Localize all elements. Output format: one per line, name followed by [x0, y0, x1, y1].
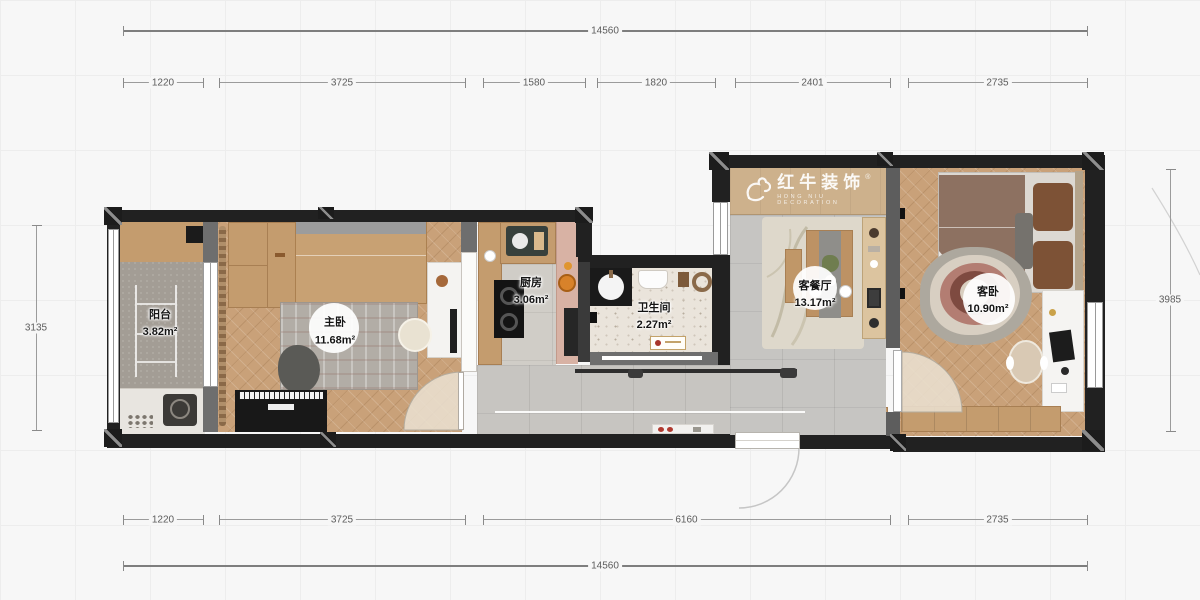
logo-subtext: HONG NIU DECORATION [777, 194, 882, 206]
tall-cabinet [461, 252, 477, 372]
laptop [1049, 330, 1075, 363]
room-name: 厨房 [514, 274, 549, 290]
wardrobe-handle [275, 253, 285, 257]
paper [1051, 383, 1067, 393]
master-wardrobe [228, 222, 300, 308]
washing-machine-door [170, 399, 190, 419]
kettle [869, 318, 879, 328]
master-bed [295, 220, 427, 304]
desk-monitor [450, 309, 457, 353]
chair-armrest [1040, 356, 1048, 370]
dimension: 6160 [672, 514, 700, 525]
wardrobe-seam [229, 265, 267, 266]
bed2-headboard [1075, 171, 1083, 295]
dimension: 3135 [22, 322, 50, 333]
corner-pillar [877, 152, 893, 166]
door-glass-line [210, 263, 211, 386]
bed2-pillow [1033, 241, 1073, 289]
dimension: 14560 [588, 560, 622, 571]
plate [839, 285, 852, 298]
dimension [1166, 169, 1176, 170]
room-label-master: 主卧 11.68m² [315, 314, 355, 347]
bath-sliding-door [602, 356, 702, 360]
room-label-bedroom2: 客卧 10.90m² [968, 283, 1009, 315]
piano [235, 390, 327, 432]
wok-pan [558, 274, 576, 292]
shoe-mat [652, 424, 714, 434]
bath-vanity [590, 268, 632, 306]
living-side-cabinet [862, 217, 886, 339]
dimension [219, 515, 220, 525]
wall-top-right-block [712, 155, 1105, 168]
room-name: 客餐厅 [795, 277, 836, 293]
master-bed-pillows [296, 221, 426, 234]
dimension [203, 515, 204, 525]
dimension [203, 78, 204, 88]
dimension: 1220 [149, 77, 177, 88]
dimension [715, 78, 716, 88]
logo-text-block: 红牛装饰® HONG NIU DECORATION [777, 174, 882, 206]
drying-rack-bar [137, 303, 175, 305]
master-desk [427, 262, 462, 358]
bedroom2-chair [1008, 340, 1044, 384]
wall-top-left-block [107, 210, 593, 222]
bedroom2-wardrobe [901, 406, 1061, 432]
wall-divider-pillar [886, 412, 900, 436]
pebble-decor [127, 414, 153, 428]
dimension [32, 225, 42, 226]
sink-bowl [512, 233, 528, 249]
dimension [483, 78, 484, 88]
pan-decor [564, 262, 572, 270]
dimension: 1220 [149, 514, 177, 525]
logo-registered-mark: ® [865, 174, 870, 181]
desk-item [1049, 309, 1056, 316]
wardrobe-seam [267, 223, 268, 307]
corner-pillar [320, 432, 336, 447]
dimension: 3725 [328, 514, 356, 525]
wall-divider [886, 168, 900, 348]
kitchen-kettle [484, 250, 496, 262]
dimension: 1580 [520, 77, 548, 88]
room-area: 3.06m² [514, 294, 549, 306]
photo-frame [867, 288, 881, 308]
entry-door-leaf [736, 440, 799, 441]
bath-faucet [609, 270, 613, 278]
balcony-window [108, 229, 119, 423]
dimension [32, 430, 42, 431]
piano-keys [239, 392, 323, 399]
clothes-rod-bar [575, 369, 797, 371]
room-area: 10.90m² [968, 303, 1009, 315]
room-area: 2.27m² [637, 319, 672, 331]
brand-logo: 红牛装饰® HONG NIU DECORATION [742, 174, 882, 206]
room-name: 卫生间 [637, 299, 672, 315]
room-label-kitchen: 厨房 3.06m² [514, 274, 549, 306]
dimension [123, 561, 124, 571]
dimension: 2735 [983, 514, 1011, 525]
towel-decor [655, 340, 661, 346]
kitchen-sink [506, 226, 548, 256]
partition-pillar [203, 222, 218, 262]
master-plant [278, 345, 320, 393]
wall-bath-bottom [590, 352, 718, 365]
bed2-gray-pillow [1015, 213, 1033, 269]
room-label-balcony: 阳台 3.82m² [143, 306, 178, 338]
wall-mark [900, 208, 905, 219]
dimension: 14560 [588, 25, 622, 36]
bed2-pillow [1033, 183, 1073, 231]
window-line [720, 203, 721, 254]
room-label-living: 客餐厅 13.17m² [795, 277, 836, 309]
corner-pillar [575, 207, 593, 223]
dimension [1166, 431, 1176, 432]
dimension [1087, 26, 1088, 36]
living-window [713, 202, 728, 255]
corner-pillar [1082, 430, 1104, 451]
partition-pillar [203, 387, 218, 432]
dimension: 2401 [798, 77, 826, 88]
dimension [123, 26, 124, 36]
corner-pillar [709, 152, 729, 170]
corner-pillar [890, 434, 906, 451]
dimension [483, 515, 484, 525]
wall-hook [590, 312, 597, 323]
shower-head [692, 272, 712, 292]
dimension [908, 515, 909, 525]
dimension: 2735 [983, 77, 1011, 88]
bedroom2-window [1087, 302, 1103, 388]
vase [870, 260, 878, 268]
dimension [123, 78, 124, 88]
wall-bottom-right [893, 437, 1105, 452]
master-chair [398, 318, 432, 352]
entry-door-frame [735, 432, 800, 449]
curtain [219, 226, 226, 426]
desk-item [1061, 367, 1069, 375]
dimension [1087, 515, 1088, 525]
room-name: 主卧 [315, 314, 355, 330]
bed-seam [296, 255, 426, 256]
master-door-leaf [458, 372, 464, 430]
dimension [585, 78, 586, 88]
desk-decor [436, 275, 448, 287]
room-name: 阳台 [143, 306, 178, 322]
hanging-clothes [780, 368, 797, 378]
slipper [667, 427, 673, 432]
slipper [658, 427, 664, 432]
corner-pillar [318, 207, 334, 219]
bull-icon [742, 174, 771, 204]
chair-armrest [1006, 356, 1014, 370]
logo-text: 红牛装饰 [777, 173, 865, 192]
dimension [465, 78, 466, 88]
wall-bottom-left [107, 434, 737, 448]
room-area: 13.17m² [795, 297, 836, 309]
towel-rack [650, 336, 686, 350]
dimension [123, 515, 124, 525]
wall-bottom-entry [800, 434, 893, 449]
hanging-clothes [628, 369, 643, 378]
floorplan-canvas: 红牛装饰® HONG NIU DECORATION 阳台 3.82m² 主卧 1… [0, 0, 1200, 600]
dimension: 3725 [328, 77, 356, 88]
shower-caddy [678, 272, 689, 287]
window-line [1095, 303, 1096, 387]
wall-bath-left [578, 262, 590, 362]
kitchen-wall-pillar [461, 222, 477, 252]
floor-seam [495, 411, 805, 413]
wall-bath-right [712, 255, 730, 367]
dimension: 3985 [1156, 295, 1184, 306]
corner-pillar [104, 207, 122, 225]
cutting-board [534, 232, 544, 250]
dimension [219, 78, 220, 88]
room-label-bathroom: 卫生间 2.27m² [637, 299, 672, 331]
dimension [890, 515, 891, 525]
window-line [113, 230, 114, 422]
bedroom2-desk [1042, 290, 1084, 412]
burner [500, 313, 518, 331]
entry-door-arc [739, 448, 799, 508]
balcony-box [186, 226, 204, 243]
dimension [465, 515, 466, 525]
dimension [908, 78, 909, 88]
duvet-fold [939, 227, 1025, 228]
dimension [890, 78, 891, 88]
dimension [1087, 78, 1088, 88]
plate-stack [868, 246, 880, 252]
room-name: 客卧 [968, 283, 1009, 299]
bedroom2-door-leaf [893, 350, 902, 412]
dimension [597, 78, 598, 88]
decor-arc [1152, 188, 1200, 275]
wall-mark [900, 288, 905, 299]
dimension [1087, 561, 1088, 571]
corner-pillar [1082, 152, 1104, 170]
mat-item [693, 427, 701, 432]
teapot [869, 228, 879, 238]
towel-bar [665, 341, 681, 343]
corner-pillar [104, 429, 122, 447]
toilet [638, 270, 668, 289]
drying-rack-bar [137, 361, 175, 363]
room-area: 11.68m² [315, 335, 355, 347]
piano-label [268, 404, 294, 410]
dimension [735, 78, 736, 88]
balcony-sliding-door [203, 262, 218, 387]
room-area: 3.82m² [143, 326, 178, 338]
dimension: 1820 [642, 77, 670, 88]
